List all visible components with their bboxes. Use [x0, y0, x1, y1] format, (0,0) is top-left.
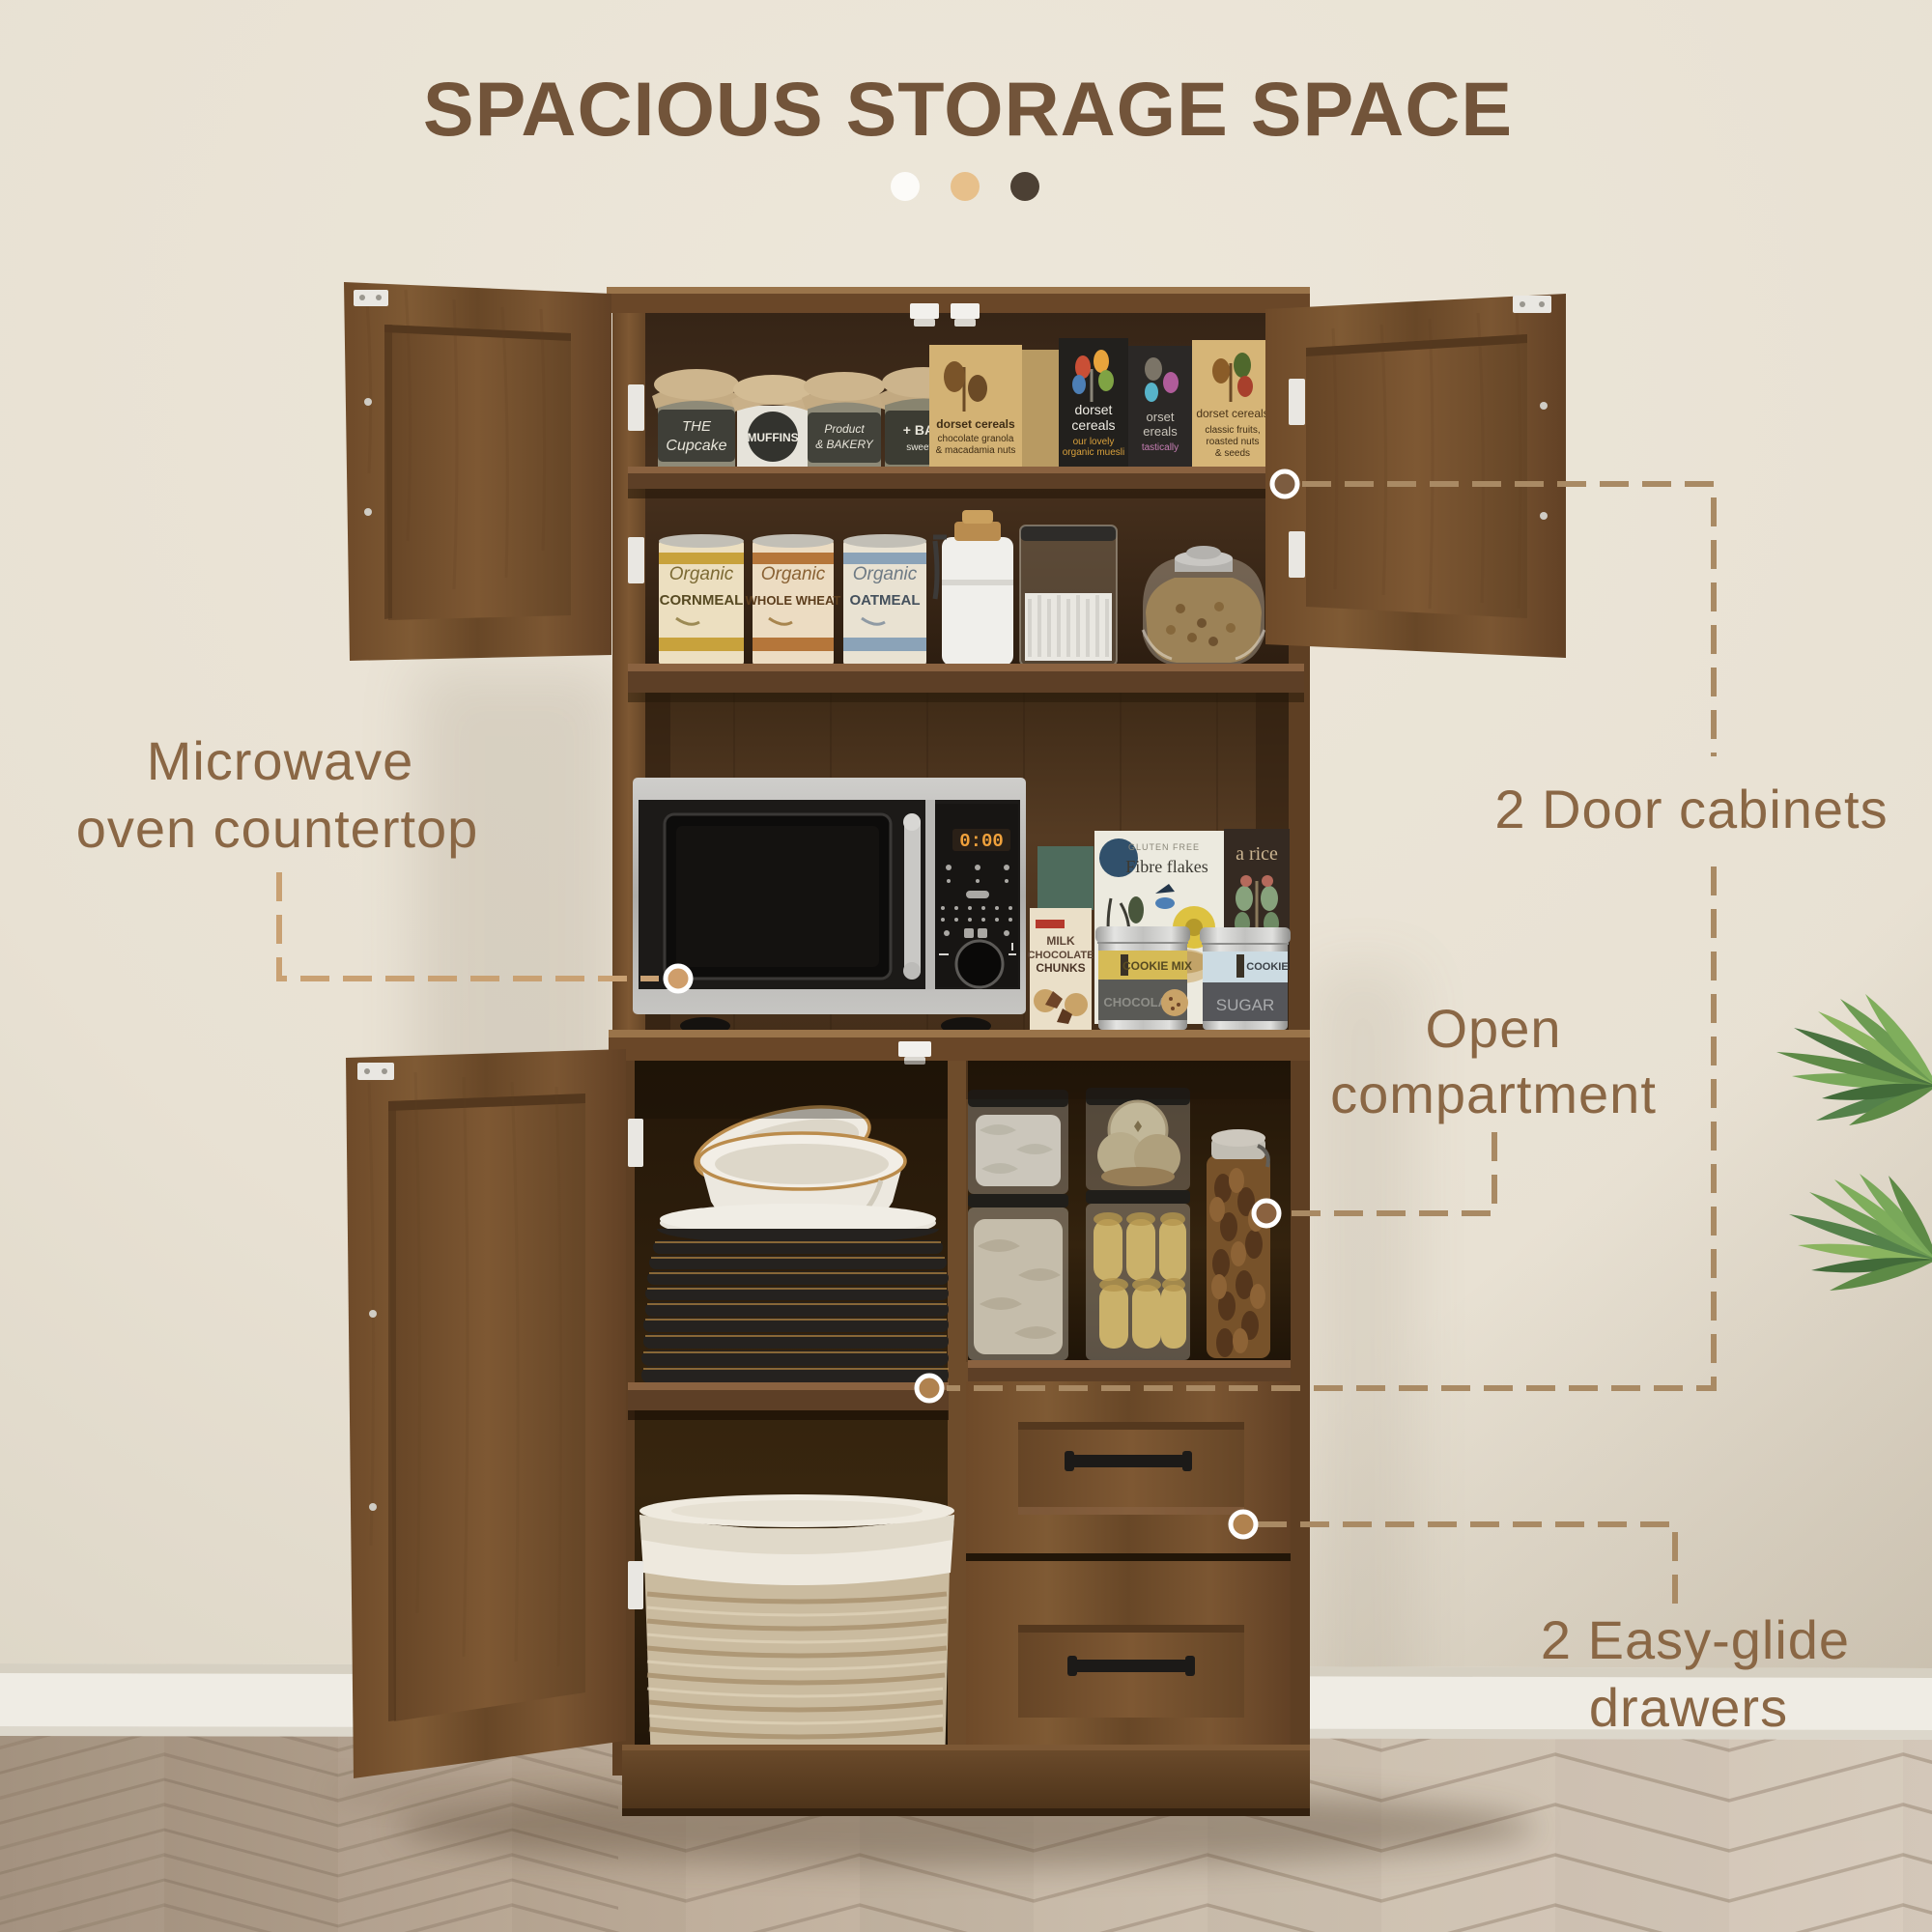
svg-text:our lovely: our lovely [1073, 437, 1115, 447]
svg-text:MUFFINS: MUFFINS [747, 431, 798, 444]
svg-text:Organic: Organic [853, 564, 918, 584]
svg-text:ereals: ereals [1143, 424, 1178, 439]
svg-text:CORNMEAL: CORNMEAL [660, 592, 744, 609]
svg-text:0:00: 0:00 [959, 831, 1004, 852]
svg-text:compartment: compartment [1330, 1064, 1657, 1124]
svg-text:tastically: tastically [1142, 442, 1179, 453]
svg-text:classic fruits,: classic fruits, [1205, 425, 1260, 436]
svg-text:Microwave: Microwave [147, 730, 414, 791]
svg-text:2 Easy-glide: 2 Easy-glide [1541, 1609, 1850, 1670]
svg-text:MILK: MILK [1046, 934, 1075, 948]
svg-text:WHOLE WHEAT: WHOLE WHEAT [746, 593, 841, 608]
svg-text:dorset cereals: dorset cereals [1196, 407, 1268, 420]
svg-text:chocolate granola: chocolate granola [938, 434, 1014, 444]
svg-text:oven countertop: oven countertop [76, 798, 479, 859]
svg-text:CHOCOLATE: CHOCOLATE [1028, 950, 1094, 961]
svg-text:a rice: a rice [1236, 843, 1278, 865]
svg-text:dorset cereals: dorset cereals [936, 417, 1015, 431]
svg-text:THE: THE [682, 418, 712, 435]
svg-text:SUGAR: SUGAR [1216, 996, 1274, 1014]
svg-text:organic muesli: organic muesli [1063, 447, 1124, 458]
svg-text:OATMEAL: OATMEAL [849, 592, 920, 609]
svg-text:2 Door cabinets: 2 Door cabinets [1494, 779, 1888, 839]
svg-text:Cupcake: Cupcake [666, 438, 726, 454]
svg-text:Organic: Organic [761, 564, 826, 584]
svg-text:orset: orset [1147, 410, 1175, 424]
svg-text:& seeds: & seeds [1215, 448, 1250, 459]
svg-text:cereals: cereals [1071, 417, 1115, 433]
svg-text:COOKIE MIX: COOKIE MIX [1122, 959, 1192, 973]
svg-text:CHUNKS: CHUNKS [1036, 961, 1085, 975]
svg-text:COOKIE: COOKIE [1246, 961, 1288, 973]
svg-text:Open: Open [1426, 998, 1562, 1059]
svg-text:Organic: Organic [669, 564, 734, 584]
svg-text:roasted nuts: roasted nuts [1206, 437, 1259, 447]
svg-text:Product: Product [824, 422, 865, 436]
svg-text:dorset: dorset [1075, 402, 1113, 417]
svg-text:drawers: drawers [1589, 1677, 1788, 1738]
svg-text:SPACIOUS STORAGE SPACE: SPACIOUS STORAGE SPACE [423, 66, 1513, 152]
svg-text:& macadamia nuts: & macadamia nuts [936, 445, 1016, 456]
svg-text:Fibre flakes: Fibre flakes [1125, 857, 1207, 876]
svg-text:GLUTEN FREE: GLUTEN FREE [1128, 842, 1200, 852]
svg-text:& BAKERY: & BAKERY [815, 438, 874, 451]
